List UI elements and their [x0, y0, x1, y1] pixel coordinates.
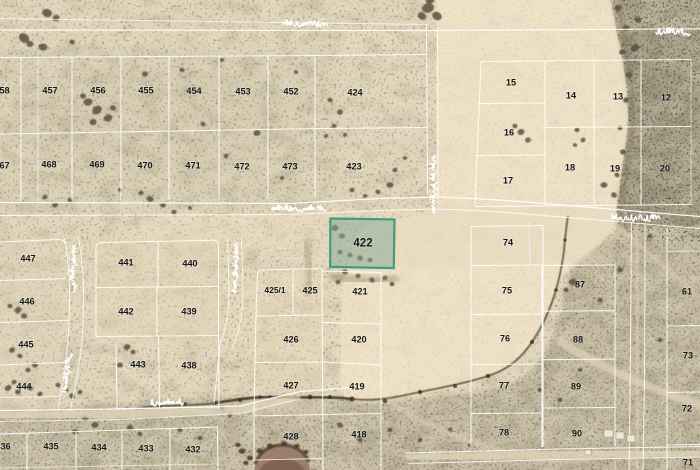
svg-text:444: 444 [16, 381, 32, 391]
svg-text:458: 458 [0, 85, 10, 95]
svg-text:453: 453 [235, 86, 250, 96]
svg-text:473: 473 [282, 161, 297, 171]
svg-text:434: 434 [91, 442, 107, 452]
svg-text:420: 420 [351, 334, 366, 344]
svg-text:17: 17 [503, 175, 513, 185]
svg-text:447: 447 [20, 253, 35, 263]
svg-text:12: 12 [661, 92, 671, 102]
svg-text:16: 16 [504, 127, 514, 137]
svg-text:425/1: 425/1 [264, 285, 286, 295]
svg-text:443: 443 [130, 359, 145, 369]
svg-text:15: 15 [506, 77, 516, 87]
svg-text:78: 78 [499, 427, 509, 437]
svg-text:441: 441 [118, 257, 133, 267]
svg-text:20: 20 [660, 163, 670, 173]
svg-text:13: 13 [613, 91, 623, 101]
svg-text:425: 425 [302, 285, 317, 295]
svg-text:422: 422 [353, 238, 372, 250]
svg-text:77: 77 [499, 380, 509, 390]
svg-text:87: 87 [575, 279, 585, 289]
svg-text:471: 471 [185, 160, 200, 170]
svg-text:74: 74 [503, 237, 514, 247]
svg-text:452: 452 [283, 86, 298, 96]
svg-text:436: 436 [0, 441, 11, 451]
svg-text:433: 433 [138, 443, 153, 453]
svg-text:435: 435 [43, 441, 58, 451]
svg-text:423: 423 [346, 161, 361, 171]
svg-text:424: 424 [347, 87, 363, 97]
svg-text:438: 438 [181, 360, 196, 370]
svg-text:470: 470 [137, 160, 152, 170]
svg-text:90: 90 [572, 428, 582, 438]
svg-text:72: 72 [682, 403, 692, 413]
svg-text:426: 426 [283, 334, 298, 344]
svg-text:442: 442 [118, 306, 133, 316]
svg-text:427: 427 [283, 380, 298, 390]
svg-text:75: 75 [502, 285, 512, 295]
svg-text:61: 61 [682, 286, 692, 296]
svg-text:455: 455 [138, 85, 153, 95]
svg-text:14: 14 [566, 90, 577, 100]
svg-text:454: 454 [186, 86, 202, 96]
svg-text:439: 439 [181, 306, 196, 316]
svg-text:76: 76 [500, 333, 510, 343]
svg-text:418: 418 [351, 429, 366, 439]
svg-text:440: 440 [182, 258, 197, 268]
svg-text:71: 71 [683, 457, 693, 467]
svg-text:89: 89 [571, 381, 581, 391]
svg-text:445: 445 [18, 339, 33, 349]
svg-text:421: 421 [352, 286, 367, 296]
svg-text:432: 432 [185, 444, 200, 454]
svg-text:18: 18 [565, 162, 575, 172]
svg-text:472: 472 [234, 161, 249, 171]
svg-text:446: 446 [19, 296, 34, 306]
svg-text:469: 469 [89, 159, 104, 169]
svg-text:468: 468 [41, 159, 56, 169]
svg-text:19: 19 [610, 163, 620, 173]
svg-text:428: 428 [283, 431, 298, 441]
svg-text:419: 419 [349, 381, 364, 391]
svg-text:73: 73 [683, 350, 693, 360]
svg-text:457: 457 [42, 85, 57, 95]
svg-text:456: 456 [90, 85, 105, 95]
svg-text:467: 467 [0, 160, 10, 170]
svg-text:88: 88 [573, 334, 583, 344]
